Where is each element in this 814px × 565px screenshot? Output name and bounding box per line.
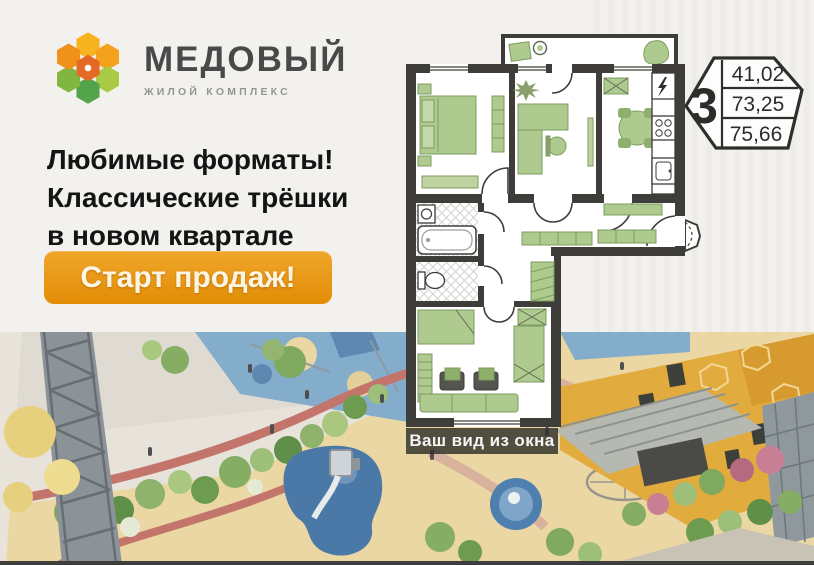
brand-tagline: ЖИЛОЙ КОМПЛЕКС (144, 86, 347, 98)
headline-line-2: Классические трёшки (47, 179, 348, 217)
plant-icon (512, 80, 540, 101)
sofa (420, 394, 518, 412)
promo-banner: МЕДОВЫЙ ЖИЛОЙ КОМПЛЕКС Любимые форматы! … (0, 0, 814, 565)
window-view-label: Ваш вид из окна (406, 428, 558, 454)
area-living: 73,25 (732, 93, 785, 116)
toilet-room (416, 262, 478, 301)
headline: Любимые форматы! Классические трёшки в н… (47, 141, 348, 255)
bathroom (416, 203, 478, 256)
balcony-armchair (644, 41, 669, 65)
area-total: 75,66 (730, 123, 783, 146)
brand-logo: МЕДОВЫЙ ЖИЛОЙ КОМПЛЕКС (42, 22, 347, 114)
bed-2 (418, 310, 474, 344)
headline-line-1: Любимые форматы! (47, 141, 348, 179)
toilet (426, 273, 445, 289)
chair (548, 137, 566, 155)
bed-3 (514, 326, 544, 382)
balcony (503, 36, 676, 67)
entrance-notch (685, 220, 700, 251)
headline-line-3: в новом квартале (47, 217, 348, 255)
brand-name: МЕДОВЫЙ (144, 42, 347, 77)
rooms-count: 3 (690, 78, 718, 134)
corridor-wardrobe (531, 262, 554, 301)
fountain (490, 478, 542, 530)
honeycomb-flower-icon (42, 22, 134, 114)
area-small: 41,02 (732, 63, 785, 86)
apartment-badge: 3 41,02 73,25 75,66 (682, 50, 808, 158)
sales-start-button[interactable]: Старт продаж! (44, 251, 332, 304)
floorplan (406, 24, 702, 430)
